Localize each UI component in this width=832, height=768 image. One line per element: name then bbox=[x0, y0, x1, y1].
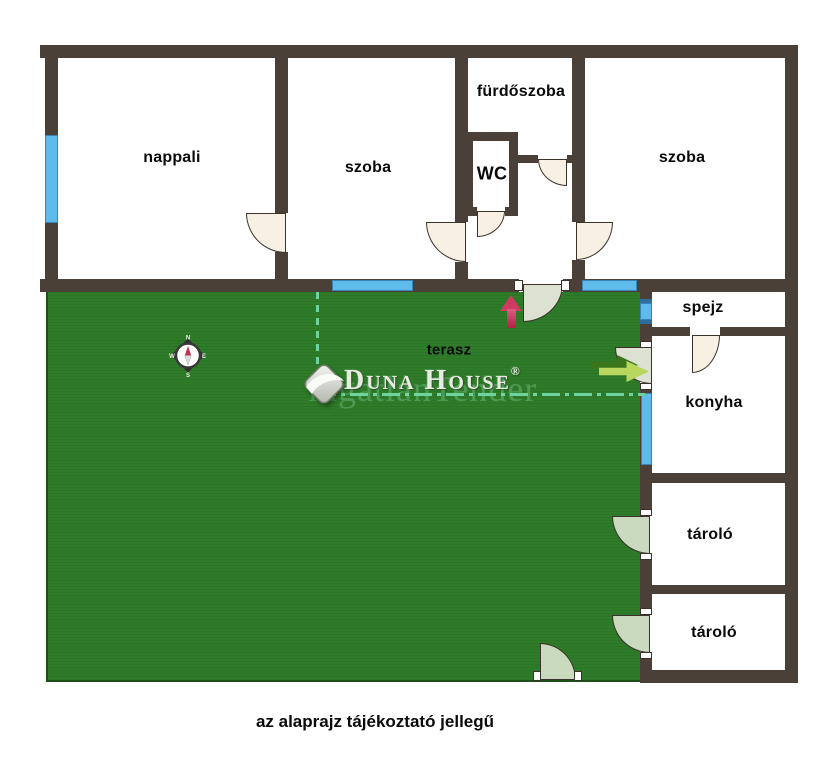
door-jamb bbox=[574, 671, 582, 681]
room-label-szoba-right: szoba bbox=[659, 149, 705, 167]
window bbox=[45, 135, 58, 223]
brand-logo: Duna House® bbox=[344, 364, 522, 397]
door-jamb bbox=[640, 608, 652, 615]
svg-text:W: W bbox=[169, 354, 175, 360]
svg-text:N: N bbox=[186, 336, 190, 342]
top-strip-floor bbox=[40, 45, 798, 292]
wall-wc bbox=[509, 132, 518, 216]
door-jamb bbox=[640, 553, 652, 560]
door-jamb bbox=[640, 509, 652, 516]
brand-name: Duna House bbox=[344, 365, 511, 396]
window-sill bbox=[640, 320, 652, 324]
wall-wc bbox=[464, 132, 473, 216]
wall bbox=[785, 45, 798, 683]
room-label-szoba-left: szoba bbox=[345, 159, 391, 177]
wall bbox=[652, 585, 785, 594]
entry-arrow-icon bbox=[500, 295, 522, 329]
terrace-area bbox=[46, 292, 640, 682]
room-label-nappali: nappali bbox=[143, 149, 200, 167]
room-label-terasz: terasz bbox=[427, 342, 472, 359]
compass-icon: N E S W bbox=[168, 332, 208, 378]
wall bbox=[652, 473, 785, 483]
svg-text:E: E bbox=[202, 354, 206, 360]
door-jamb bbox=[640, 652, 652, 659]
wall bbox=[40, 45, 798, 58]
disclaimer-note: az alaprajz tájékoztató jellegű bbox=[230, 712, 520, 732]
room-label-tarolo-1: tároló bbox=[687, 526, 733, 544]
room-label-furdoszoba: fürdőszoba bbox=[477, 83, 565, 101]
door-jamb bbox=[533, 671, 541, 681]
room-label-tarolo-2: tároló bbox=[691, 624, 737, 642]
wall-wc bbox=[464, 132, 518, 141]
floor-plan: ingatlanTender Duna House® N E S W nappa… bbox=[0, 0, 832, 768]
door-jamb bbox=[514, 280, 523, 291]
window bbox=[332, 280, 413, 291]
wall bbox=[40, 279, 798, 292]
room-label-wc: WC bbox=[477, 164, 507, 185]
window bbox=[582, 280, 637, 291]
room-label-konyha: konyha bbox=[685, 394, 742, 412]
registered-mark: ® bbox=[511, 364, 522, 378]
door-jamb bbox=[561, 280, 570, 291]
wall bbox=[640, 670, 798, 683]
room-label-spejz: spejz bbox=[682, 299, 723, 317]
window bbox=[641, 393, 652, 465]
door-jamb bbox=[640, 341, 652, 348]
door-jamb bbox=[640, 383, 652, 390]
svg-text:S: S bbox=[186, 373, 190, 378]
window bbox=[640, 303, 652, 320]
